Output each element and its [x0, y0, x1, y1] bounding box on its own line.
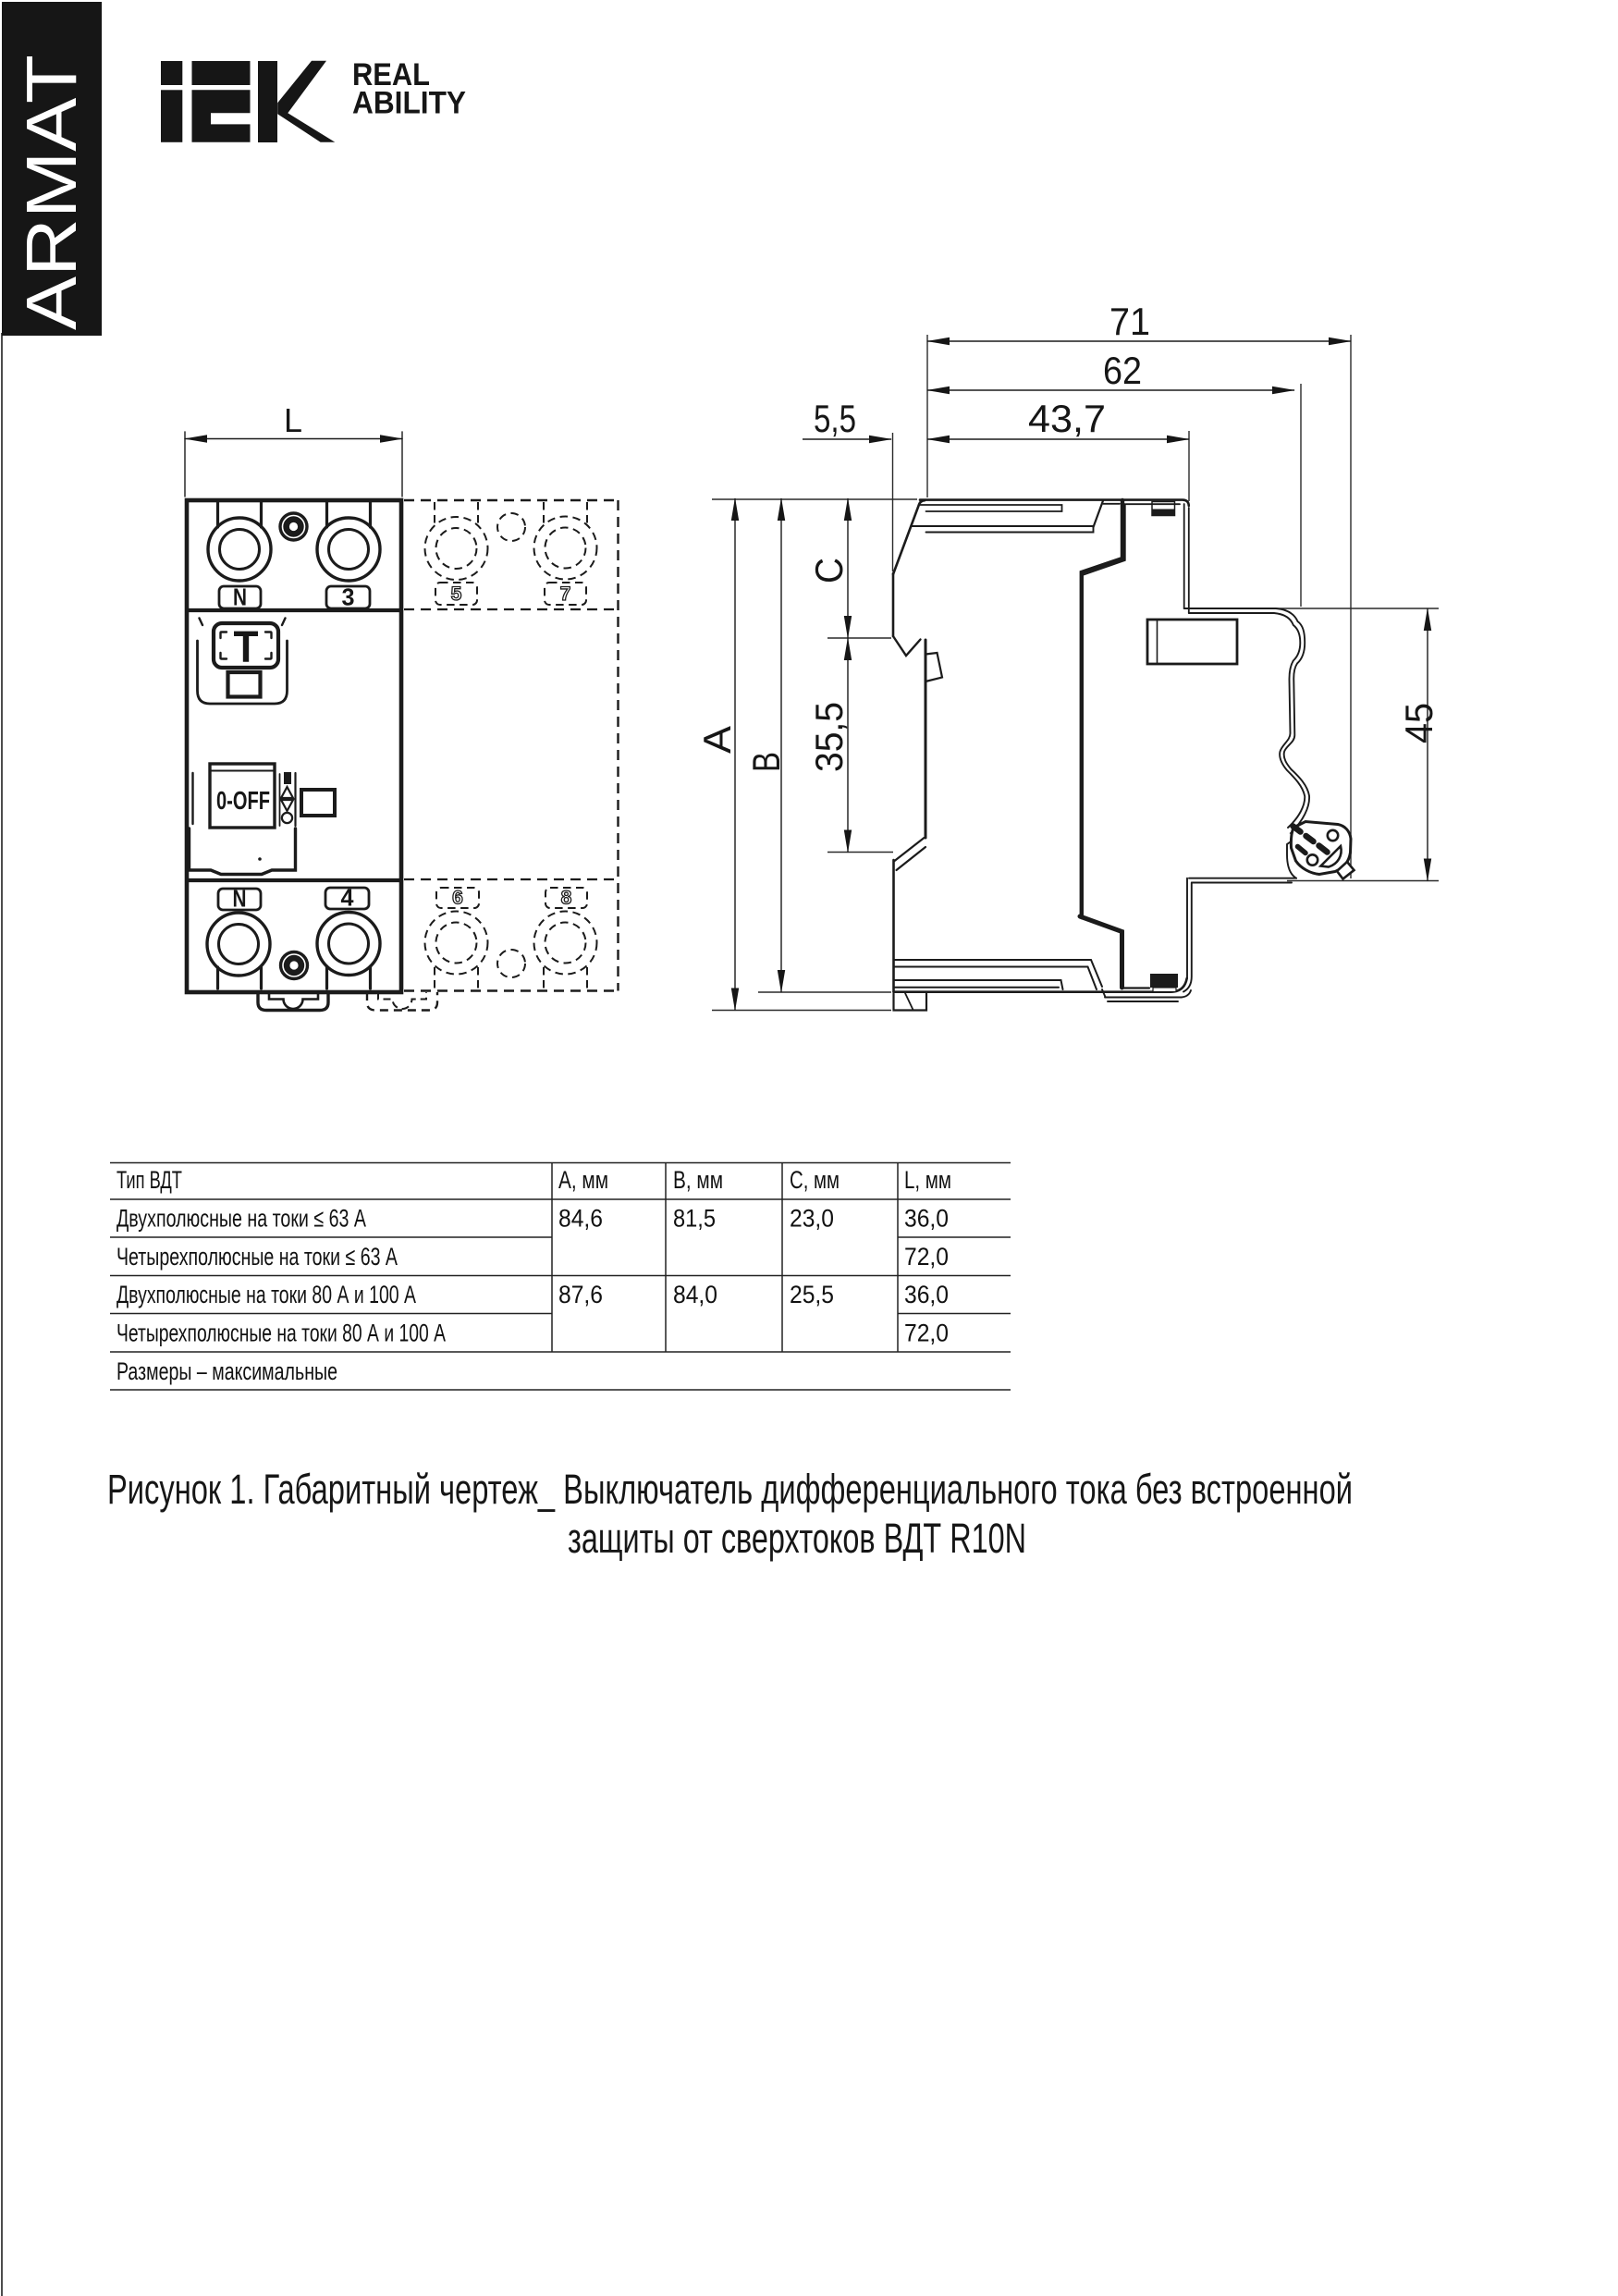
svg-text:ABILITY: ABILITY: [352, 85, 466, 120]
svg-text:А, мм: А, мм: [558, 1166, 608, 1194]
svg-text:N: N: [233, 885, 247, 913]
svg-text:Размеры – максимальные: Размеры – максимальные: [116, 1357, 337, 1385]
svg-text:23,0: 23,0: [790, 1205, 834, 1233]
svg-text:35,5: 35,5: [807, 702, 851, 772]
svg-text:Двухполюсные на токи 80 А и 10: Двухполюсные на токи 80 А и 100 А: [116, 1281, 416, 1308]
svg-text:43,7: 43,7: [1028, 397, 1106, 440]
svg-text:4: 4: [341, 884, 355, 912]
svg-text:36,0: 36,0: [904, 1205, 949, 1233]
svg-text:L: L: [284, 401, 302, 439]
svg-text:Четырехполюсные на токи ≤ 63 А: Четырехполюсные на токи ≤ 63 А: [116, 1243, 398, 1271]
svg-text:Двухполюсные на токи ≤ 63 А: Двухполюсные на токи ≤ 63 А: [116, 1205, 366, 1233]
svg-text:C: C: [807, 558, 851, 583]
svg-text:84,0: 84,0: [673, 1281, 717, 1308]
svg-text:5,5: 5,5: [814, 397, 856, 440]
svg-text:72,0: 72,0: [904, 1320, 949, 1347]
svg-text:Рисунок 1. Габаритный чертеж_: Рисунок 1. Габаритный чертеж_ Выключател…: [107, 1466, 1353, 1513]
svg-text:3: 3: [342, 583, 355, 611]
svg-text:45: 45: [1397, 703, 1440, 743]
svg-text:84,6: 84,6: [558, 1205, 603, 1233]
svg-text:71: 71: [1109, 300, 1150, 343]
svg-text:Четырехполюсные на токи 80 А и: Четырехполюсные на токи 80 А и 100 А: [116, 1320, 446, 1347]
svg-text:T: T: [234, 623, 259, 672]
svg-text:0-OFF: 0-OFF: [216, 786, 270, 815]
svg-text:62: 62: [1103, 349, 1142, 392]
svg-text:L, мм: L, мм: [904, 1166, 951, 1194]
svg-text:8: 8: [561, 888, 572, 909]
svg-text:B, мм: B, мм: [673, 1166, 723, 1194]
svg-text:36,0: 36,0: [904, 1281, 949, 1308]
svg-text:6: 6: [452, 888, 463, 909]
svg-text:5: 5: [451, 583, 462, 605]
svg-text:25,5: 25,5: [790, 1281, 834, 1308]
svg-text:7: 7: [560, 583, 571, 605]
svg-text:C, мм: C, мм: [790, 1166, 840, 1194]
svg-text:защиты от сверхтоков ВДТ R10N: защиты от сверхтоков ВДТ R10N: [568, 1515, 1026, 1562]
svg-text:N: N: [233, 583, 247, 611]
svg-text:72,0: 72,0: [904, 1243, 949, 1271]
svg-text:Тип ВДТ: Тип ВДТ: [116, 1166, 182, 1194]
svg-text:81,5: 81,5: [673, 1205, 716, 1233]
svg-text:ARMAT: ARMAT: [12, 55, 92, 330]
svg-text:87,6: 87,6: [558, 1281, 603, 1308]
svg-text:B: B: [744, 752, 788, 772]
svg-text:A: A: [695, 726, 739, 754]
